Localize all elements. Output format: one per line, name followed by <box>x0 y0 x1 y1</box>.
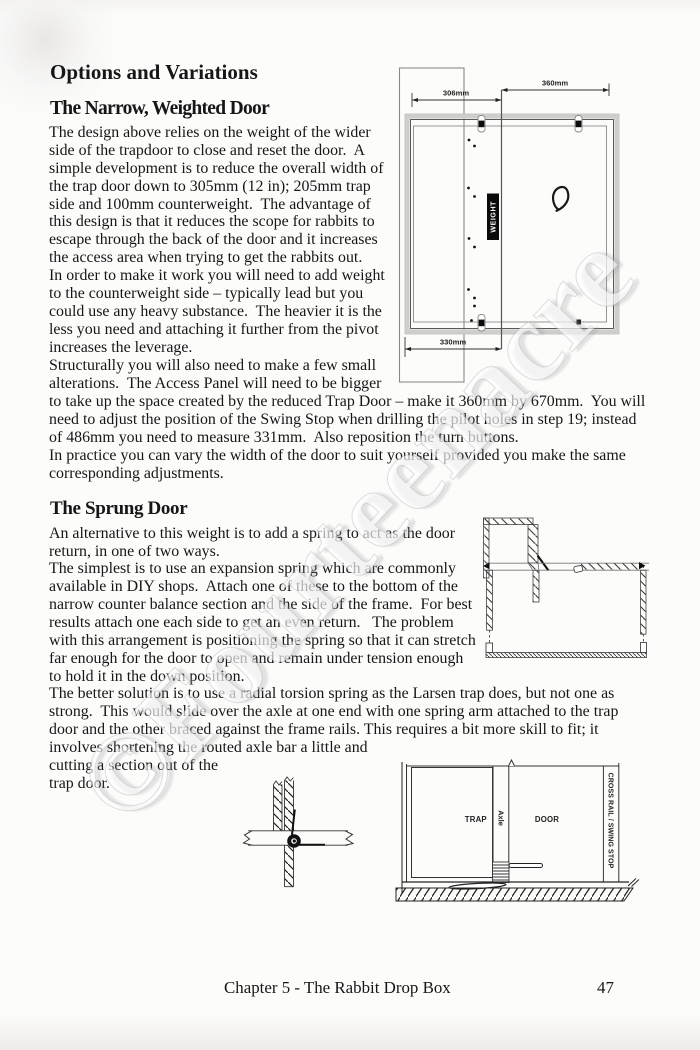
svg-text:360mm: 360mm <box>542 79 568 88</box>
svg-text:TRAP: TRAP <box>465 815 487 824</box>
svg-text:DOOR: DOOR <box>535 815 559 824</box>
svg-text:Axle: Axle <box>497 810 506 826</box>
svg-text:©Fourteenacre: ©Fourteenacre <box>52 210 658 847</box>
svg-text:306mm: 306mm <box>443 89 469 98</box>
svg-text:CROSS RAIL / SWING STOP: CROSS RAIL / SWING STOP <box>607 773 614 869</box>
svg-text:WEIGHT: WEIGHT <box>490 201 497 233</box>
